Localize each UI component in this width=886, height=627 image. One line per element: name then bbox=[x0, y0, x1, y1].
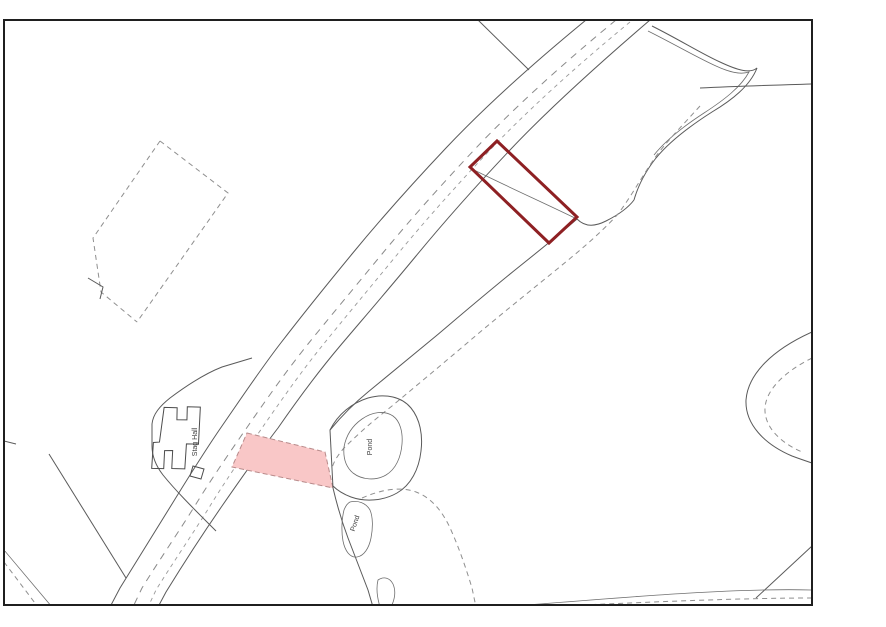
field-boundaries-right bbox=[500, 332, 812, 607]
diagonal-field-line bbox=[49, 454, 126, 578]
dashed-field-parcel bbox=[4, 141, 228, 444]
road-centerline-dashed bbox=[133, 20, 616, 607]
pond-field-dashed-boundary bbox=[362, 489, 476, 607]
highlight-area-pink bbox=[232, 433, 333, 488]
map-frame-border bbox=[4, 20, 812, 605]
site-plan-map: Stag Hall Pond Pond bbox=[0, 0, 886, 627]
stag-hall-enclosure bbox=[152, 358, 252, 531]
field-boundaries-bottom-left bbox=[4, 454, 126, 607]
dashed-parcel-outline bbox=[137, 141, 228, 322]
road-left-edge bbox=[110, 20, 586, 607]
track-strip-inner bbox=[648, 31, 749, 155]
road bbox=[110, 20, 650, 607]
track-strip-outer bbox=[634, 26, 757, 200]
pond-lower-group: Pond bbox=[333, 488, 476, 607]
pond-upper-group: Pond bbox=[330, 396, 422, 500]
pond-lower-label: Pond bbox=[350, 515, 362, 533]
border-tick bbox=[4, 441, 16, 444]
application-site-boundary-red bbox=[470, 141, 577, 243]
road-inner-dashed bbox=[148, 22, 630, 607]
right-curve-solid bbox=[746, 332, 812, 463]
stag-hall-area: Stag Hall bbox=[151, 358, 252, 531]
pond-upper-label: Pond bbox=[367, 439, 374, 455]
stag-hall-label: Stag Hall bbox=[192, 427, 199, 456]
road-right-edge bbox=[158, 20, 650, 607]
track-line-solid bbox=[4, 550, 52, 607]
field-boundary-main bbox=[330, 200, 634, 430]
small-feature-outline bbox=[377, 578, 395, 607]
right-curve-dashed bbox=[765, 358, 812, 452]
dashed-parcel-left-edge bbox=[93, 141, 160, 322]
boundary-through-plot bbox=[470, 168, 577, 219]
boundary-line-horizontal bbox=[700, 84, 812, 88]
site-plan-drawing: Stag Hall Pond Pond bbox=[0, 0, 886, 627]
field-line-top-v bbox=[478, 20, 529, 70]
corner-mark bbox=[88, 278, 103, 299]
